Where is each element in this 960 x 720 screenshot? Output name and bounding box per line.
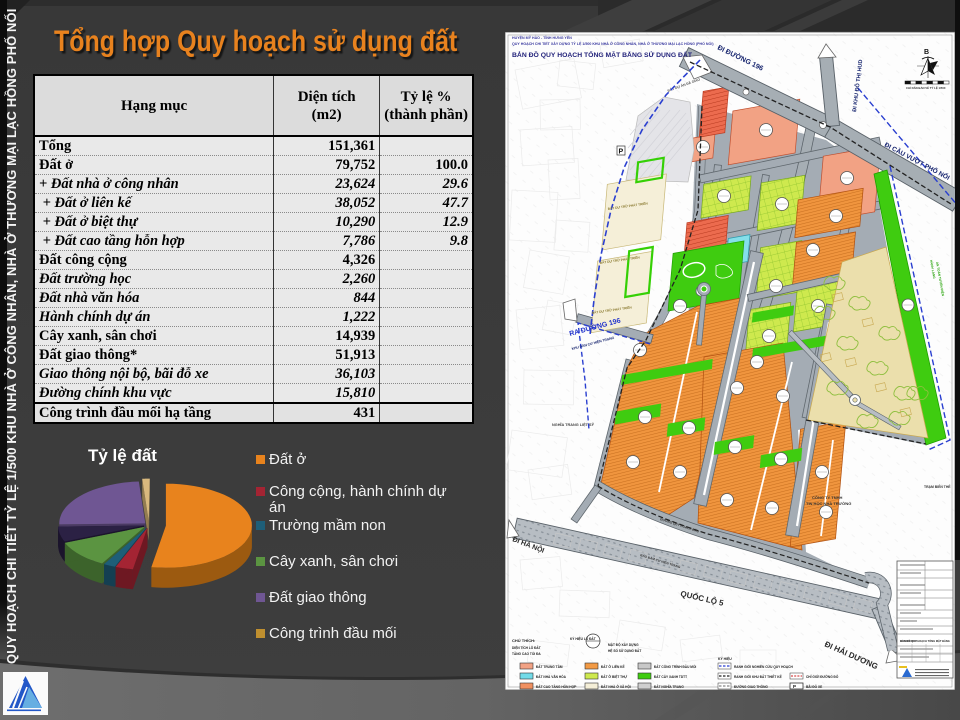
svg-text:CHỈ DẪN BẢN VẼ TỶ LỆ 1/500: CHỈ DẪN BẢN VẼ TỶ LỆ 1/500 <box>906 85 946 90</box>
svg-text:DIỆN TÍCH LÔ ĐẤT: DIỆN TÍCH LÔ ĐẤT <box>512 645 541 650</box>
svg-text:RANH GIỚI KHU ĐẤT THIẾT KẾ: RANH GIỚI KHU ĐẤT THIẾT KẾ <box>734 674 782 679</box>
svg-text:KÝ HIỆU LÔ ĐẤT: KÝ HIỆU LÔ ĐẤT <box>570 636 596 641</box>
svg-text:BÃI ĐỖ XE: BÃI ĐỖ XE <box>806 684 822 689</box>
svg-text:ĐẤT NGHĨA TRANG: ĐẤT NGHĨA TRANG <box>654 684 684 689</box>
svg-text:CHÚ THÍCH:: CHÚ THÍCH: <box>512 638 535 643</box>
svg-text:HUYỆN MỸ HÀO - TỈNH HƯNG YÊN: HUYỆN MỸ HÀO - TỈNH HƯNG YÊN <box>512 35 572 40</box>
svg-text:ĐẤT TRUNG TÂM: ĐẤT TRUNG TÂM <box>536 664 563 669</box>
svg-text:B: B <box>924 49 929 56</box>
svg-text:RANH GIỚI NGHIÊN CỨU QUY HOẠCH: RANH GIỚI NGHIÊN CỨU QUY HOẠCH <box>734 664 793 669</box>
svg-text:TIN HỌC NHÀ TRƯỜNG: TIN HỌC NHÀ TRƯỜNG <box>806 501 851 506</box>
svg-text:P: P <box>793 684 796 689</box>
svg-text:QUY HOẠCH CHI TIẾT XÂY DỰNG TỶ: QUY HOẠCH CHI TIẾT XÂY DỰNG TỶ LỆ 1/500 … <box>512 41 714 46</box>
svg-text:ĐẤT CAO TẦNG HỖN HỢP: ĐẤT CAO TẦNG HỖN HỢP <box>536 684 577 689</box>
svg-text:CÔNG TY TNHH: CÔNG TY TNHH <box>812 495 842 500</box>
svg-text:P: P <box>619 149 624 156</box>
svg-text:TẦNG CAO TỐI ĐA: TẦNG CAO TỐI ĐA <box>512 651 541 656</box>
svg-text:ĐẤT Ở BIỆT THỰ: ĐẤT Ở BIỆT THỰ <box>601 674 627 679</box>
svg-text:HỆ SỐ SỬ DỤNG ĐẤT: HỆ SỐ SỬ DỤNG ĐẤT <box>608 648 641 653</box>
svg-text:CHỈ GIỚI ĐƯỜNG ĐỎ: CHỈ GIỚI ĐƯỜNG ĐỎ <box>806 674 839 679</box>
svg-text:ĐẤT NHÀ VĂN HÓA: ĐẤT NHÀ VĂN HÓA <box>536 674 567 679</box>
svg-text:TRẠM BIẾN THẾ: TRẠM BIẾN THẾ <box>924 484 951 489</box>
svg-text:ĐẤT NHÀ Ở XÃ HỘI: ĐẤT NHÀ Ở XÃ HỘI <box>601 684 631 689</box>
svg-text:KÝ HIỆU: KÝ HIỆU <box>718 656 732 661</box>
svg-text:ĐẤT CÂY XANH TDTT: ĐẤT CÂY XANH TDTT <box>654 674 687 679</box>
svg-text:NGHĨA TRANG LIỆT SỸ: NGHĨA TRANG LIỆT SỸ <box>552 422 595 427</box>
svg-text:MẬT ĐỘ XÂY DỰNG: MẬT ĐỘ XÂY DỰNG <box>608 642 639 647</box>
svg-text:ĐẤT CÔNG TRÌNH ĐẦU MỐI: ĐẤT CÔNG TRÌNH ĐẦU MỐI <box>654 664 696 669</box>
svg-text:ĐƯỜNG GIAO THÔNG: ĐƯỜNG GIAO THÔNG <box>734 684 768 689</box>
svg-text:ĐẤT Ở LIÊN KẾ: ĐẤT Ở LIÊN KẾ <box>601 664 625 669</box>
